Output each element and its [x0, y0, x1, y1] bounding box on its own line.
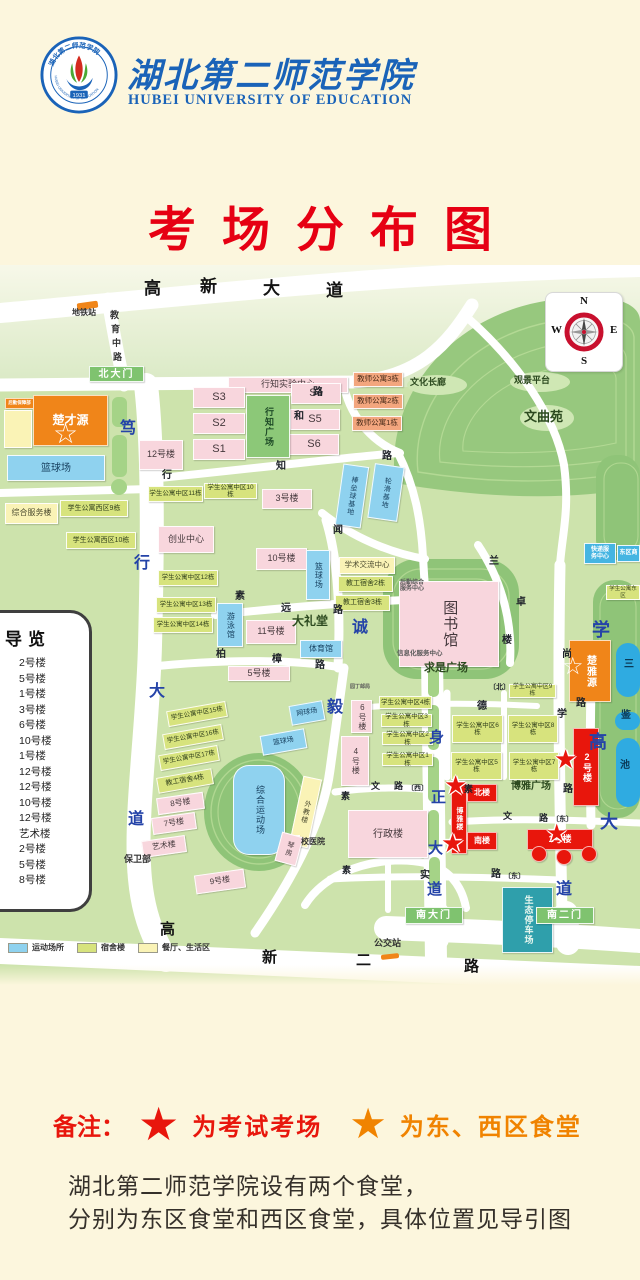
map-building: S2	[193, 413, 245, 434]
map-building: 学生公寓西区10栋	[66, 532, 136, 549]
map-building: 快递服 务中心	[584, 543, 616, 564]
guide-title: 导览	[5, 625, 89, 650]
map-text: 大礼堂	[292, 615, 328, 628]
north-gate: 北大门	[89, 366, 144, 382]
pond	[616, 738, 640, 807]
map-text: 学	[557, 710, 567, 721]
map-text: 后勤综合 服务中心	[400, 580, 424, 593]
map-text: 行	[134, 555, 150, 572]
map-text: 路	[313, 388, 323, 399]
map-text: 路	[491, 870, 501, 881]
campus-map: 导览 2号楼5号楼1号楼3号楼6号楼10号楼1号楼12号楼12号楼10号楼12号…	[0, 265, 640, 985]
map-text: 高	[144, 281, 161, 299]
map-building: 游泳馆	[217, 603, 243, 647]
map-text: 和	[294, 412, 304, 423]
map-building: 学生公寓中区4栋	[379, 696, 432, 709]
map-text: 兰	[489, 557, 499, 568]
compass: N S W E	[545, 292, 623, 372]
map-text: 知	[276, 462, 286, 473]
map-text: 文	[371, 783, 380, 792]
map-text: 路	[576, 699, 586, 710]
map-text: 观景平台	[514, 377, 550, 386]
university-logo: 湖北第二师范学院 HUBEI UNIVERSITY OF EDUCATION 1…	[40, 36, 118, 114]
south-gate-2: 南二门	[536, 907, 594, 924]
map-text: 德	[477, 702, 487, 713]
map-building: 创业中心	[158, 526, 214, 553]
map-text: 路	[394, 783, 403, 792]
map-text: 卓	[516, 598, 526, 609]
remark-label: 备注：	[53, 1107, 125, 1142]
exam-star-icon: ★	[138, 1101, 179, 1147]
map-text: 二	[356, 953, 371, 969]
legend-swatch	[77, 943, 97, 953]
poster: 湖北第二师范学院 HUBEI UNIVERSITY OF EDUCATION 1…	[0, 0, 640, 1280]
guide-item: 12号楼	[19, 765, 89, 781]
map-text: 实	[420, 871, 430, 882]
guide-item: 艺术楼	[19, 827, 89, 843]
map-text: 育	[111, 325, 120, 334]
map-building: 学生公寓中区11栋	[148, 486, 203, 502]
map-building: 11号楼	[246, 620, 296, 644]
map-building: 行知广场	[246, 395, 290, 458]
canteen-star-icon: ☆	[53, 420, 78, 448]
compass-east: E	[610, 324, 617, 336]
map-text: 路	[333, 606, 343, 617]
map-building: 学生公寓东区	[606, 585, 640, 600]
map-building: 学生公寓中区12栋	[158, 570, 218, 586]
map-building: 学术交流中心	[339, 557, 395, 574]
legend-item: 宿舍楼	[77, 942, 125, 953]
map-building: S3	[193, 387, 245, 408]
note-line-2: 分别为东区食堂和西区食堂，具体位置见导引图	[68, 1203, 572, 1236]
guide-item: 1号楼	[19, 749, 89, 765]
admin-building: 行政楼	[348, 810, 428, 858]
map-building: 东区商	[617, 545, 640, 562]
map-building: 学生公寓中区14栋	[153, 617, 213, 633]
south-gate: 南大门	[405, 907, 463, 924]
map-building: 学生公寓中区8栋	[508, 715, 558, 743]
legend-swatch	[138, 943, 158, 953]
map-text: 新	[262, 950, 277, 966]
map-building: 6号楼	[351, 700, 372, 733]
map-building: 学生公寓中区2栋	[382, 732, 433, 745]
map-text: 大	[600, 814, 618, 833]
page-title: 考场分布图	[0, 190, 640, 260]
map-text: 教	[110, 311, 119, 320]
map-text: 池	[620, 761, 630, 772]
remarks-row: 备注： ★ 为考试考场 ★ 为东、西区食堂	[53, 1098, 582, 1150]
guide-item: 5号楼	[19, 672, 89, 688]
map-text: 柏	[216, 650, 226, 661]
map-text: 〔北〕	[489, 683, 510, 690]
map-text: 文曲苑	[524, 411, 563, 425]
guide-item: 5号楼	[19, 858, 89, 874]
map-building	[4, 410, 32, 448]
map-text: 闻	[333, 526, 343, 537]
map-area-legend: 运动场所宿舍楼餐厅、生活区	[8, 942, 210, 953]
map-text: 毅	[327, 699, 343, 716]
legend-item: 运动场所	[8, 942, 64, 953]
legend-item: 餐厅、生活区	[138, 942, 210, 953]
map-building: 综合服务楼	[5, 503, 58, 524]
map-text: 路	[315, 661, 325, 672]
map-building: 学生公寓中区13栋	[156, 597, 216, 613]
guide-item: 6号楼	[19, 718, 89, 734]
map-building: 5号楼	[228, 666, 290, 681]
compass-south: S	[581, 355, 587, 367]
map-building: 篮球场	[7, 455, 105, 481]
map-text: 三	[624, 660, 634, 671]
exam-star-icon: ★	[554, 747, 577, 773]
map-text: 素	[235, 592, 245, 603]
guide-item: 3号楼	[19, 703, 89, 719]
university-name-en: HUBEI UNIVERSITY OF EDUCATION	[128, 92, 412, 109]
map-text: 文化长廊	[410, 379, 446, 388]
university-name-cn: 湖北第二师范学院	[127, 48, 415, 97]
map-building: 教师公寓2栋	[353, 394, 403, 409]
exam-star-icon: ★	[546, 821, 568, 845]
compass-west: W	[551, 324, 562, 336]
map-building: 篮球场	[306, 550, 330, 600]
south-exam-building: 南楼	[467, 832, 497, 850]
map-text: 身	[429, 730, 444, 746]
canteen-notes: 湖北第二师范学院设有两个食堂， 分别为东区食堂和西区食堂，具体位置见导引图	[68, 1170, 572, 1236]
map-text: 素	[341, 793, 350, 802]
map-building: 体育馆	[300, 640, 342, 658]
map-text: 路	[113, 353, 122, 362]
map-text: 文	[503, 813, 512, 822]
map-text: 校医院	[301, 838, 325, 846]
map-text: 远	[281, 604, 291, 615]
map-text: 求是广场	[424, 662, 468, 674]
guide-item: 1号楼	[19, 687, 89, 703]
map-building: 学生公寓中区3栋	[381, 714, 432, 727]
legend-swatch	[8, 943, 28, 953]
map-text: 樟	[272, 655, 282, 666]
guide-item: 12号楼	[19, 811, 89, 827]
stadium: 综合运动场	[233, 765, 285, 855]
map-text: 道	[128, 811, 144, 828]
map-building: 12号楼	[139, 440, 183, 470]
map-building: 学生公寓西区9栋	[60, 500, 128, 517]
map-text: 〔东〕	[504, 872, 525, 879]
map-text: 地铁站	[72, 309, 96, 317]
map-building	[581, 846, 597, 862]
map-building: 教工宿舍3栋	[335, 595, 390, 611]
map-building: 教师公寓3栋	[353, 372, 403, 387]
map-text: 鉴	[621, 711, 631, 722]
map-text: 高	[589, 734, 607, 753]
map-building	[531, 846, 547, 862]
exam-star-icon: ★	[441, 831, 464, 857]
guide-item: 12号楼	[19, 780, 89, 796]
guide-item: 10号楼	[19, 734, 89, 750]
legend-label: 宿舍楼	[101, 942, 125, 953]
exam-star-note: 为考试考场	[192, 1107, 322, 1142]
canteen-star-icon: ★	[349, 1103, 387, 1145]
map-text: 大	[263, 281, 280, 299]
map-text: 诚	[352, 619, 368, 636]
map-text: 行	[162, 471, 172, 482]
map-text: 保卫部	[124, 855, 151, 864]
map-building: 3号楼	[262, 489, 312, 509]
note-line-1: 湖北第二师范学院设有两个食堂，	[68, 1170, 572, 1203]
map-building: 4号楼	[341, 736, 369, 786]
guide-item: 10号楼	[19, 796, 89, 812]
map-building: S1	[193, 439, 245, 460]
map-text: 新	[200, 279, 217, 297]
compass-north: N	[580, 295, 588, 307]
canteen-star-note: 为东、西区食堂	[400, 1107, 582, 1142]
guide-item: 2号楼	[19, 656, 89, 672]
guide-panel: 导览 2号楼5号楼1号楼3号楼6号楼10号楼1号楼12号楼12号楼10号楼12号…	[0, 610, 92, 912]
map-text: 路	[382, 452, 392, 463]
map-text: 园丁邮局	[350, 685, 370, 690]
map-building: 学生公寓中区6栋	[452, 715, 503, 743]
guide-item: 8号楼	[19, 873, 89, 889]
map-building: 教师公寓1栋	[352, 416, 402, 431]
map-text: 道	[326, 283, 343, 301]
map-text: 高	[160, 922, 175, 938]
map-text: 路	[464, 959, 479, 975]
map-building	[556, 849, 572, 865]
map-text: 笃	[120, 420, 136, 437]
map-text: 素	[342, 867, 351, 876]
guide-item: 2号楼	[19, 842, 89, 858]
map-text: 大	[149, 683, 165, 700]
map-text: 学	[592, 622, 610, 641]
guide-list: 2号楼5号楼1号楼3号楼6号楼10号楼1号楼12号楼12号楼10号楼12号楼艺术…	[19, 656, 89, 889]
legend-label: 餐厅、生活区	[162, 942, 210, 953]
map-text: 〔西〕	[407, 784, 428, 791]
logistics-dept: 后勤保障部	[5, 398, 34, 409]
map-building: 教工宿舍2栋	[338, 576, 393, 592]
map-building: 学生公寓中区7栋	[509, 752, 559, 780]
map-text: 楼	[502, 636, 512, 647]
map-text: 博雅广场	[511, 782, 551, 793]
canteen-star-icon: ☆	[562, 654, 584, 678]
logo-year: 1931	[72, 93, 85, 99]
map-building: 学生公寓中区9栋	[509, 684, 556, 698]
map-text: 中	[112, 339, 121, 348]
map-text: 道	[556, 881, 572, 898]
map-text: 路	[563, 785, 573, 796]
map-building: 学生公寓中区10栋	[204, 483, 257, 499]
map-building: 学生公寓中区1栋	[382, 753, 433, 766]
map-text: 信息化服务中心	[397, 651, 443, 658]
map-building: S6	[289, 434, 339, 455]
map-building: 10号楼	[256, 548, 307, 570]
map-text: 道	[427, 882, 442, 898]
legend-label: 运动场所	[32, 942, 64, 953]
exam-star-icon: ★	[444, 773, 467, 799]
map-text: 公交站	[374, 939, 401, 948]
